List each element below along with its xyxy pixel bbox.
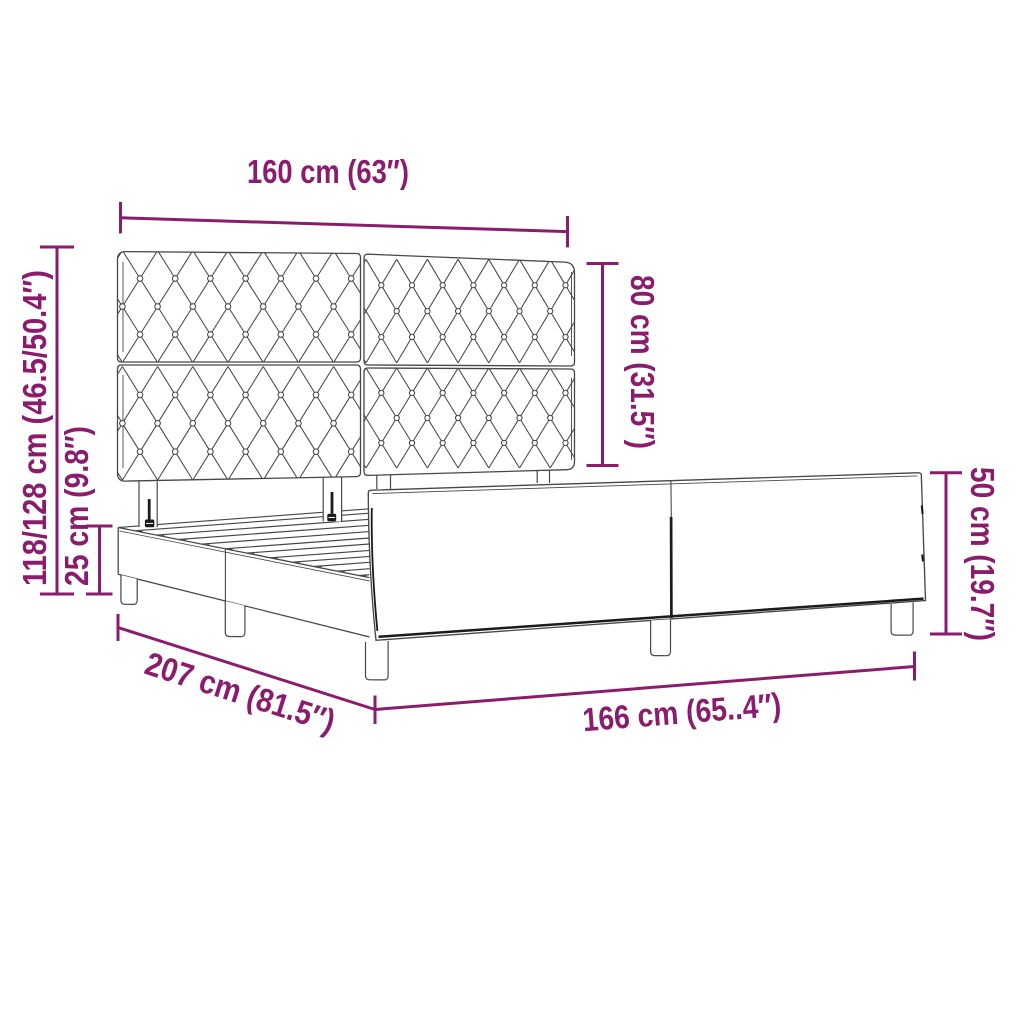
svg-text:80 cm (31.5″): 80 cm (31.5″) xyxy=(624,275,661,449)
svg-text:118/128 cm (46.5/50.4″): 118/128 cm (46.5/50.4″) xyxy=(16,270,53,586)
svg-text:25 cm (9.8″): 25 cm (9.8″) xyxy=(58,426,95,586)
svg-text:160 cm (63″): 160 cm (63″) xyxy=(247,153,409,190)
svg-text:50 cm (19.7″): 50 cm (19.7″) xyxy=(964,467,1001,641)
